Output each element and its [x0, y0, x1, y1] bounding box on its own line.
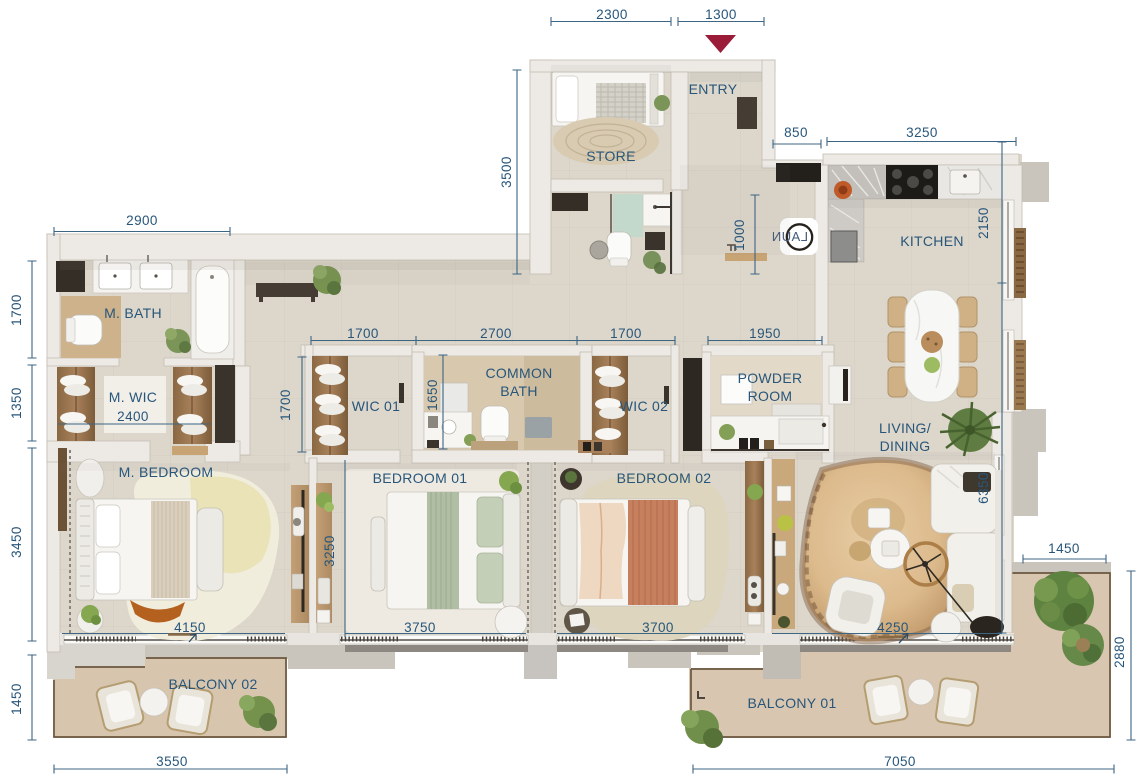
svg-text:4150: 4150 — [174, 620, 206, 635]
svg-text:850: 850 — [784, 125, 808, 140]
svg-text:2400: 2400 — [117, 409, 149, 424]
svg-text:LIVING/: LIVING/ — [879, 420, 931, 436]
svg-text:3700: 3700 — [642, 620, 674, 635]
svg-text:3250: 3250 — [906, 125, 938, 140]
svg-text:STORE: STORE — [586, 148, 635, 164]
svg-text:ENTRY: ENTRY — [689, 81, 738, 97]
svg-text:WIC 02: WIC 02 — [620, 398, 668, 414]
svg-text:3500: 3500 — [499, 156, 514, 188]
svg-text:3550: 3550 — [156, 754, 188, 769]
svg-text:4250: 4250 — [877, 620, 909, 635]
svg-text:BATH: BATH — [500, 383, 538, 399]
svg-text:BEDROOM 02: BEDROOM 02 — [617, 470, 712, 486]
svg-text:M. BEDROOM: M. BEDROOM — [119, 464, 214, 480]
svg-text:3250: 3250 — [322, 535, 337, 567]
svg-text:1700: 1700 — [610, 326, 642, 341]
svg-text:KITCHEN: KITCHEN — [900, 233, 964, 249]
svg-text:2900: 2900 — [126, 213, 158, 228]
svg-text:3450: 3450 — [9, 526, 24, 558]
svg-text:3750: 3750 — [404, 620, 436, 635]
svg-text:2150: 2150 — [976, 207, 991, 239]
svg-text:1700: 1700 — [278, 389, 293, 421]
svg-text:BALCONY 02: BALCONY 02 — [168, 676, 257, 692]
svg-text:DINING: DINING — [880, 438, 931, 454]
svg-text:7050: 7050 — [884, 754, 916, 769]
svg-text:1450: 1450 — [9, 683, 24, 715]
svg-text:2300: 2300 — [596, 7, 628, 22]
svg-text:M. BATH: M. BATH — [104, 305, 162, 321]
svg-text:ROOM: ROOM — [748, 388, 793, 404]
svg-text:1450: 1450 — [1048, 541, 1080, 556]
svg-text:1000: 1000 — [732, 219, 747, 251]
svg-text:1700: 1700 — [9, 294, 24, 326]
svg-text:1350: 1350 — [9, 387, 24, 419]
svg-text:6350: 6350 — [976, 472, 991, 504]
svg-text:2700: 2700 — [480, 326, 512, 341]
svg-text:POWDER: POWDER — [738, 370, 803, 386]
svg-text:BALCONY 01: BALCONY 01 — [747, 695, 836, 711]
svg-text:M. WIC: M. WIC — [109, 389, 157, 405]
svg-text:1700: 1700 — [347, 326, 379, 341]
svg-text:COMMON: COMMON — [485, 365, 552, 381]
svg-text:1950: 1950 — [749, 326, 781, 341]
svg-text:WIC 01: WIC 01 — [352, 398, 400, 414]
svg-text:2880: 2880 — [1112, 636, 1127, 668]
svg-text:1300: 1300 — [705, 7, 737, 22]
svg-text:BEDROOM 01: BEDROOM 01 — [373, 470, 468, 486]
svg-text:1650: 1650 — [425, 379, 440, 411]
